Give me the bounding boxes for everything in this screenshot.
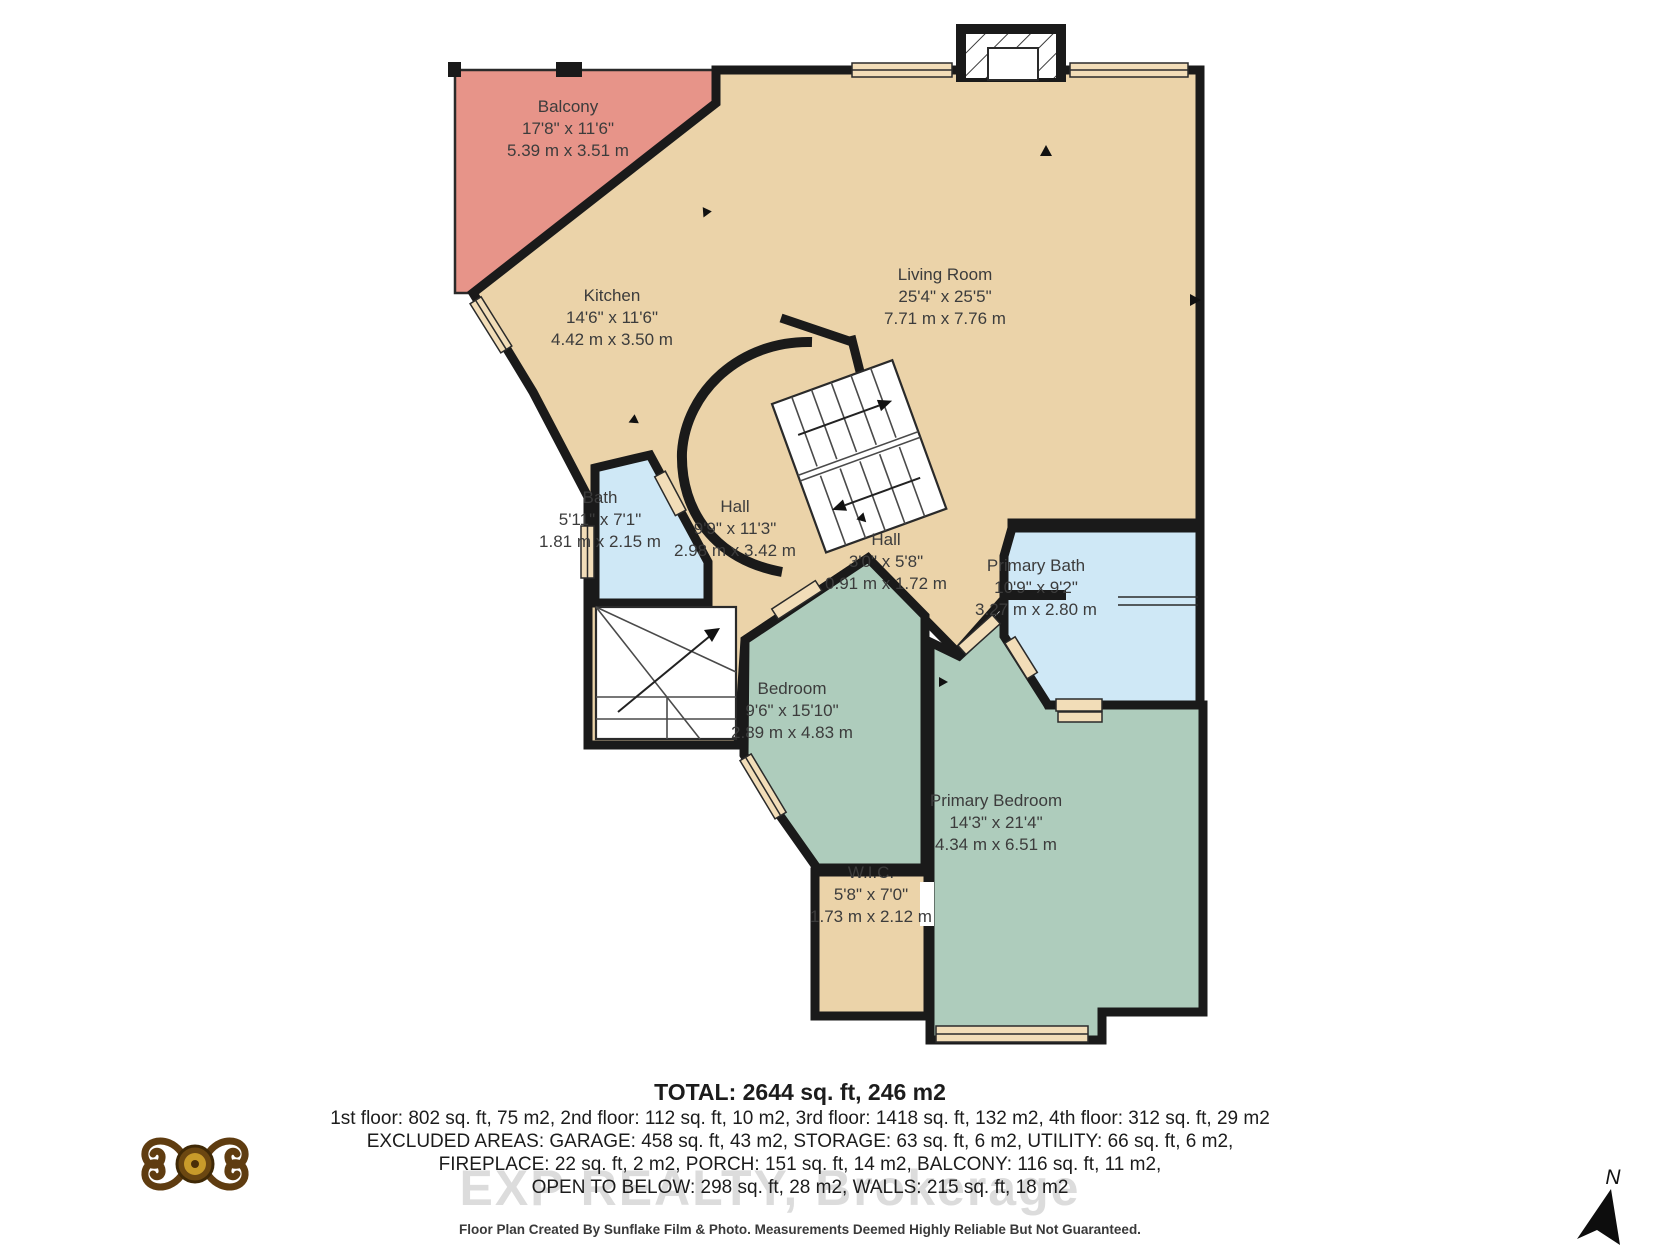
room-dim-imperial: 5'8" x 7'0" (834, 885, 908, 904)
room-dim-metric: 1.81 m x 2.15 m (539, 532, 661, 551)
room-name: Balcony (538, 97, 599, 116)
room-dim-metric: 2.98 m x 3.42 m (674, 541, 796, 560)
excluded-areas-line-1: EXCLUDED AREAS: GARAGE: 458 sq. ft, 43 m… (367, 1131, 1234, 1152)
room-name: Kitchen (584, 286, 641, 305)
door-step (1058, 712, 1102, 722)
room-label-living-room: Living Room 25'4" x 25'5" 7.71 m x 7.76 … (884, 265, 1006, 328)
room-dim-metric: 0.91 m x 1.72 m (825, 574, 947, 593)
room-dim-imperial: 25'4" x 25'5" (898, 287, 991, 306)
room-dim-metric: 5.39 m x 3.51 m (507, 141, 629, 160)
room-name: W.I.C. (848, 863, 894, 882)
room-name: Primary Bedroom (930, 791, 1062, 810)
north-arrow-pointer (1577, 1189, 1620, 1245)
north-label: N (1605, 1166, 1621, 1189)
balcony-post (556, 62, 582, 77)
room-dim-imperial: 5'11" x 7'1" (559, 510, 642, 529)
disclaimer-line: Floor Plan Created By Sunflake Film & Ph… (459, 1222, 1141, 1237)
room-name: Bedroom (758, 679, 827, 698)
total-area-line: TOTAL: 2644 sq. ft, 246 m2 (654, 1079, 946, 1105)
room-name: Hall (720, 497, 749, 516)
room-name: Living Room (898, 265, 993, 284)
excluded-areas-line-2: FIREPLACE: 22 sq. ft, 2 m2, PORCH: 151 s… (439, 1154, 1162, 1175)
fireplace (956, 24, 1066, 82)
room-dim-metric: 2.89 m x 4.83 m (731, 723, 853, 742)
room-dim-imperial: 14'6" x 11'6" (566, 308, 658, 327)
room-dim-imperial: 9'9" x 11'3" (694, 519, 777, 538)
window (1070, 63, 1188, 77)
room-dim-metric: 3.27 m x 2.80 m (975, 600, 1097, 619)
logo-medallion-dot (191, 1160, 199, 1168)
floor-plan-page: Balcony 17'8" x 11'6" 5.39 m x 3.51 m Ki… (0, 0, 1680, 1260)
north-arrow: N (1577, 1166, 1621, 1245)
room-label-primary-bedroom: Primary Bedroom 14'3" x 21'4" 4.34 m x 6… (930, 791, 1062, 854)
room-name: Hall (871, 530, 900, 549)
room-dim-imperial: 3'0" x 5'8" (849, 552, 923, 571)
room-dim-metric: 4.42 m x 3.50 m (551, 330, 673, 349)
balcony-post (448, 62, 461, 77)
window (852, 63, 952, 77)
room-dim-imperial: 17'8" x 11'6" (522, 119, 614, 138)
room-dim-imperial: 9'6" x 15'10" (745, 701, 838, 720)
room-name: Bath (583, 488, 618, 507)
room-dim-metric: 1.73 m x 2.12 m (810, 907, 932, 926)
window (936, 1026, 1088, 1042)
brand-ornament-logo (145, 1141, 245, 1187)
floor-plan-canvas: Balcony 17'8" x 11'6" 5.39 m x 3.51 m Ki… (0, 0, 1680, 1260)
floor-areas-line: 1st floor: 802 sq. ft, 75 m2, 2nd floor:… (330, 1108, 1270, 1129)
room-dim-imperial: 10'9" x 9'2" (994, 578, 1078, 597)
room-dim-metric: 7.71 m x 7.76 m (884, 309, 1006, 328)
lower-staircase (596, 607, 736, 739)
room-dim-imperial: 14'3" x 21'4" (949, 813, 1042, 832)
room-name: Primary Bath (987, 556, 1085, 575)
excluded-areas-line-3: OPEN TO BELOW: 298 sq. ft, 28 m2, WALLS:… (532, 1177, 1069, 1198)
room-dim-metric: 4.34 m x 6.51 m (935, 835, 1057, 854)
door-opening (1056, 699, 1102, 711)
